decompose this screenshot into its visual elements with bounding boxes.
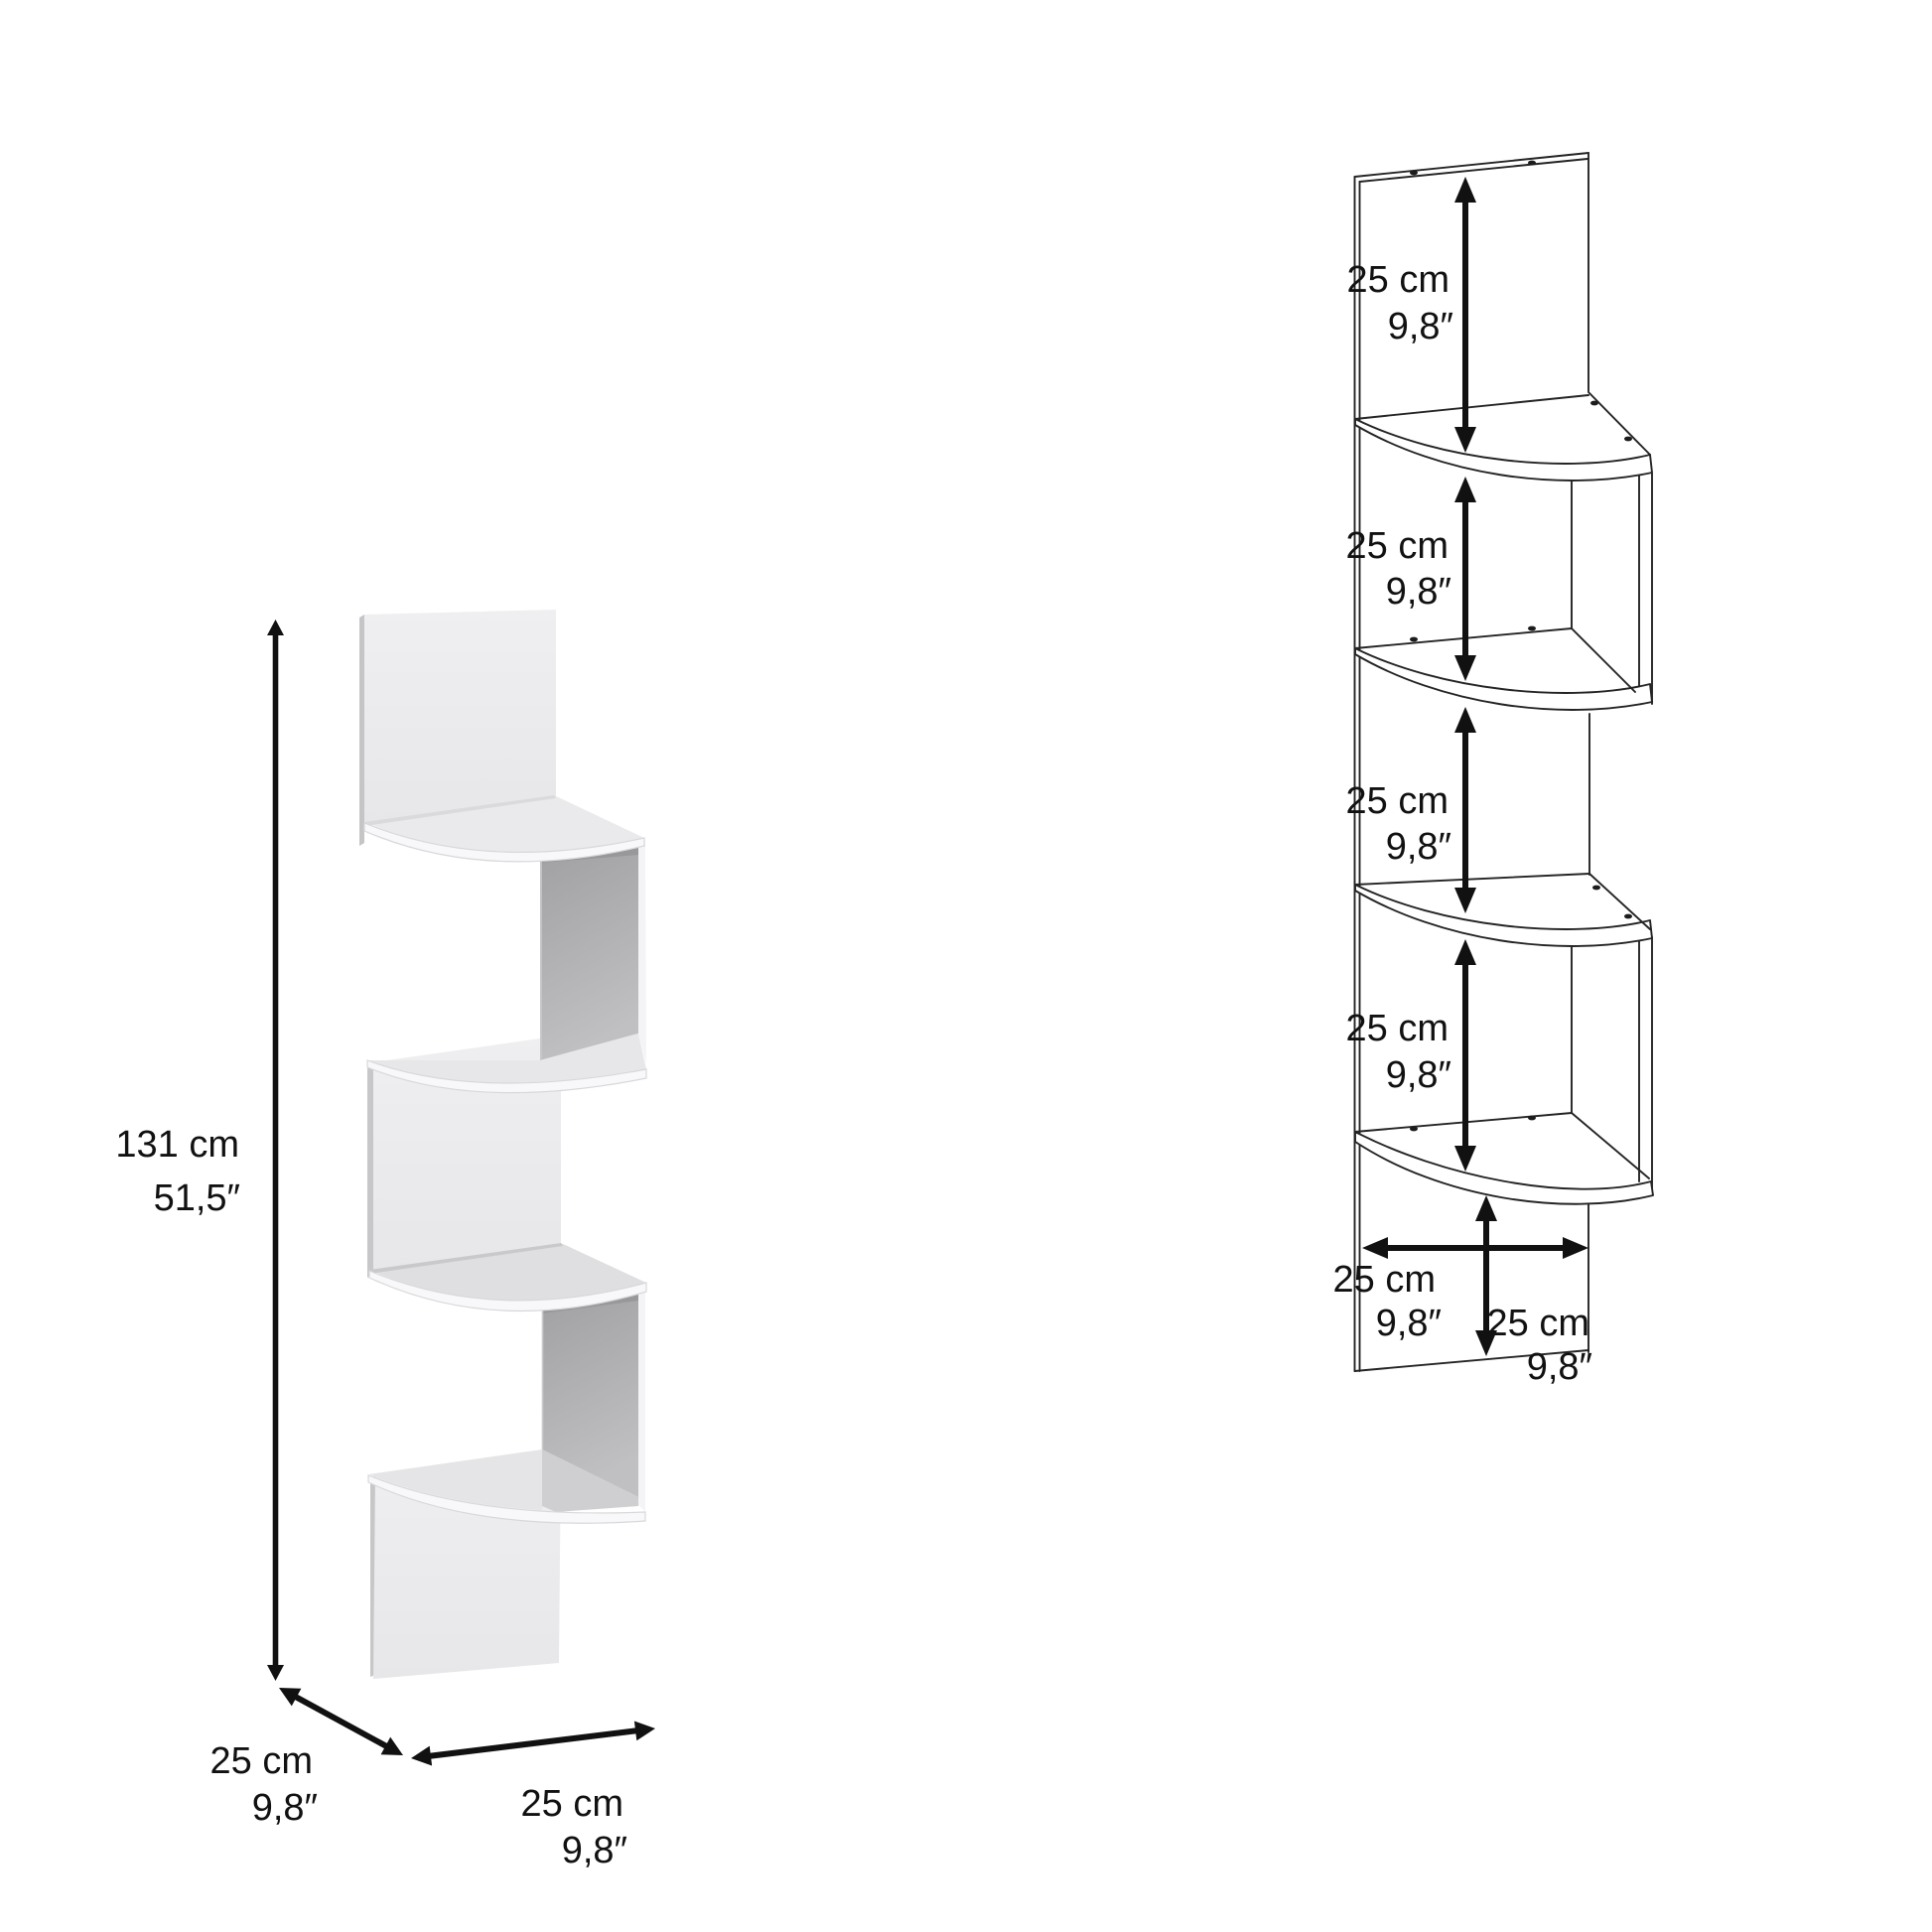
svg-text:25 cm: 25 cm: [1346, 1008, 1449, 1049]
svg-text:25 cm: 25 cm: [1347, 259, 1449, 301]
svg-text:9,8″: 9,8″: [1386, 826, 1451, 868]
svg-text:25 cm: 25 cm: [1333, 1259, 1436, 1301]
svg-text:9,8″: 9,8″: [1386, 1054, 1451, 1096]
svg-text:9,8″: 9,8″: [1386, 571, 1451, 613]
svg-text:9,8″: 9,8″: [1376, 1303, 1442, 1344]
svg-text:25 cm: 25 cm: [1487, 1303, 1589, 1344]
svg-text:9,8″: 9,8″: [562, 1830, 627, 1871]
svg-text:9,8″: 9,8″: [1388, 306, 1453, 347]
svg-text:9,8″: 9,8″: [252, 1787, 318, 1829]
svg-text:131 cm: 131 cm: [115, 1124, 239, 1166]
svg-text:25 cm: 25 cm: [210, 1740, 313, 1782]
svg-text:25 cm: 25 cm: [1346, 525, 1449, 567]
svg-text:25 cm: 25 cm: [1346, 780, 1449, 822]
svg-text:51,5″: 51,5″: [154, 1177, 240, 1219]
svg-text:25 cm: 25 cm: [521, 1783, 623, 1825]
svg-text:9,8″: 9,8″: [1527, 1346, 1592, 1388]
